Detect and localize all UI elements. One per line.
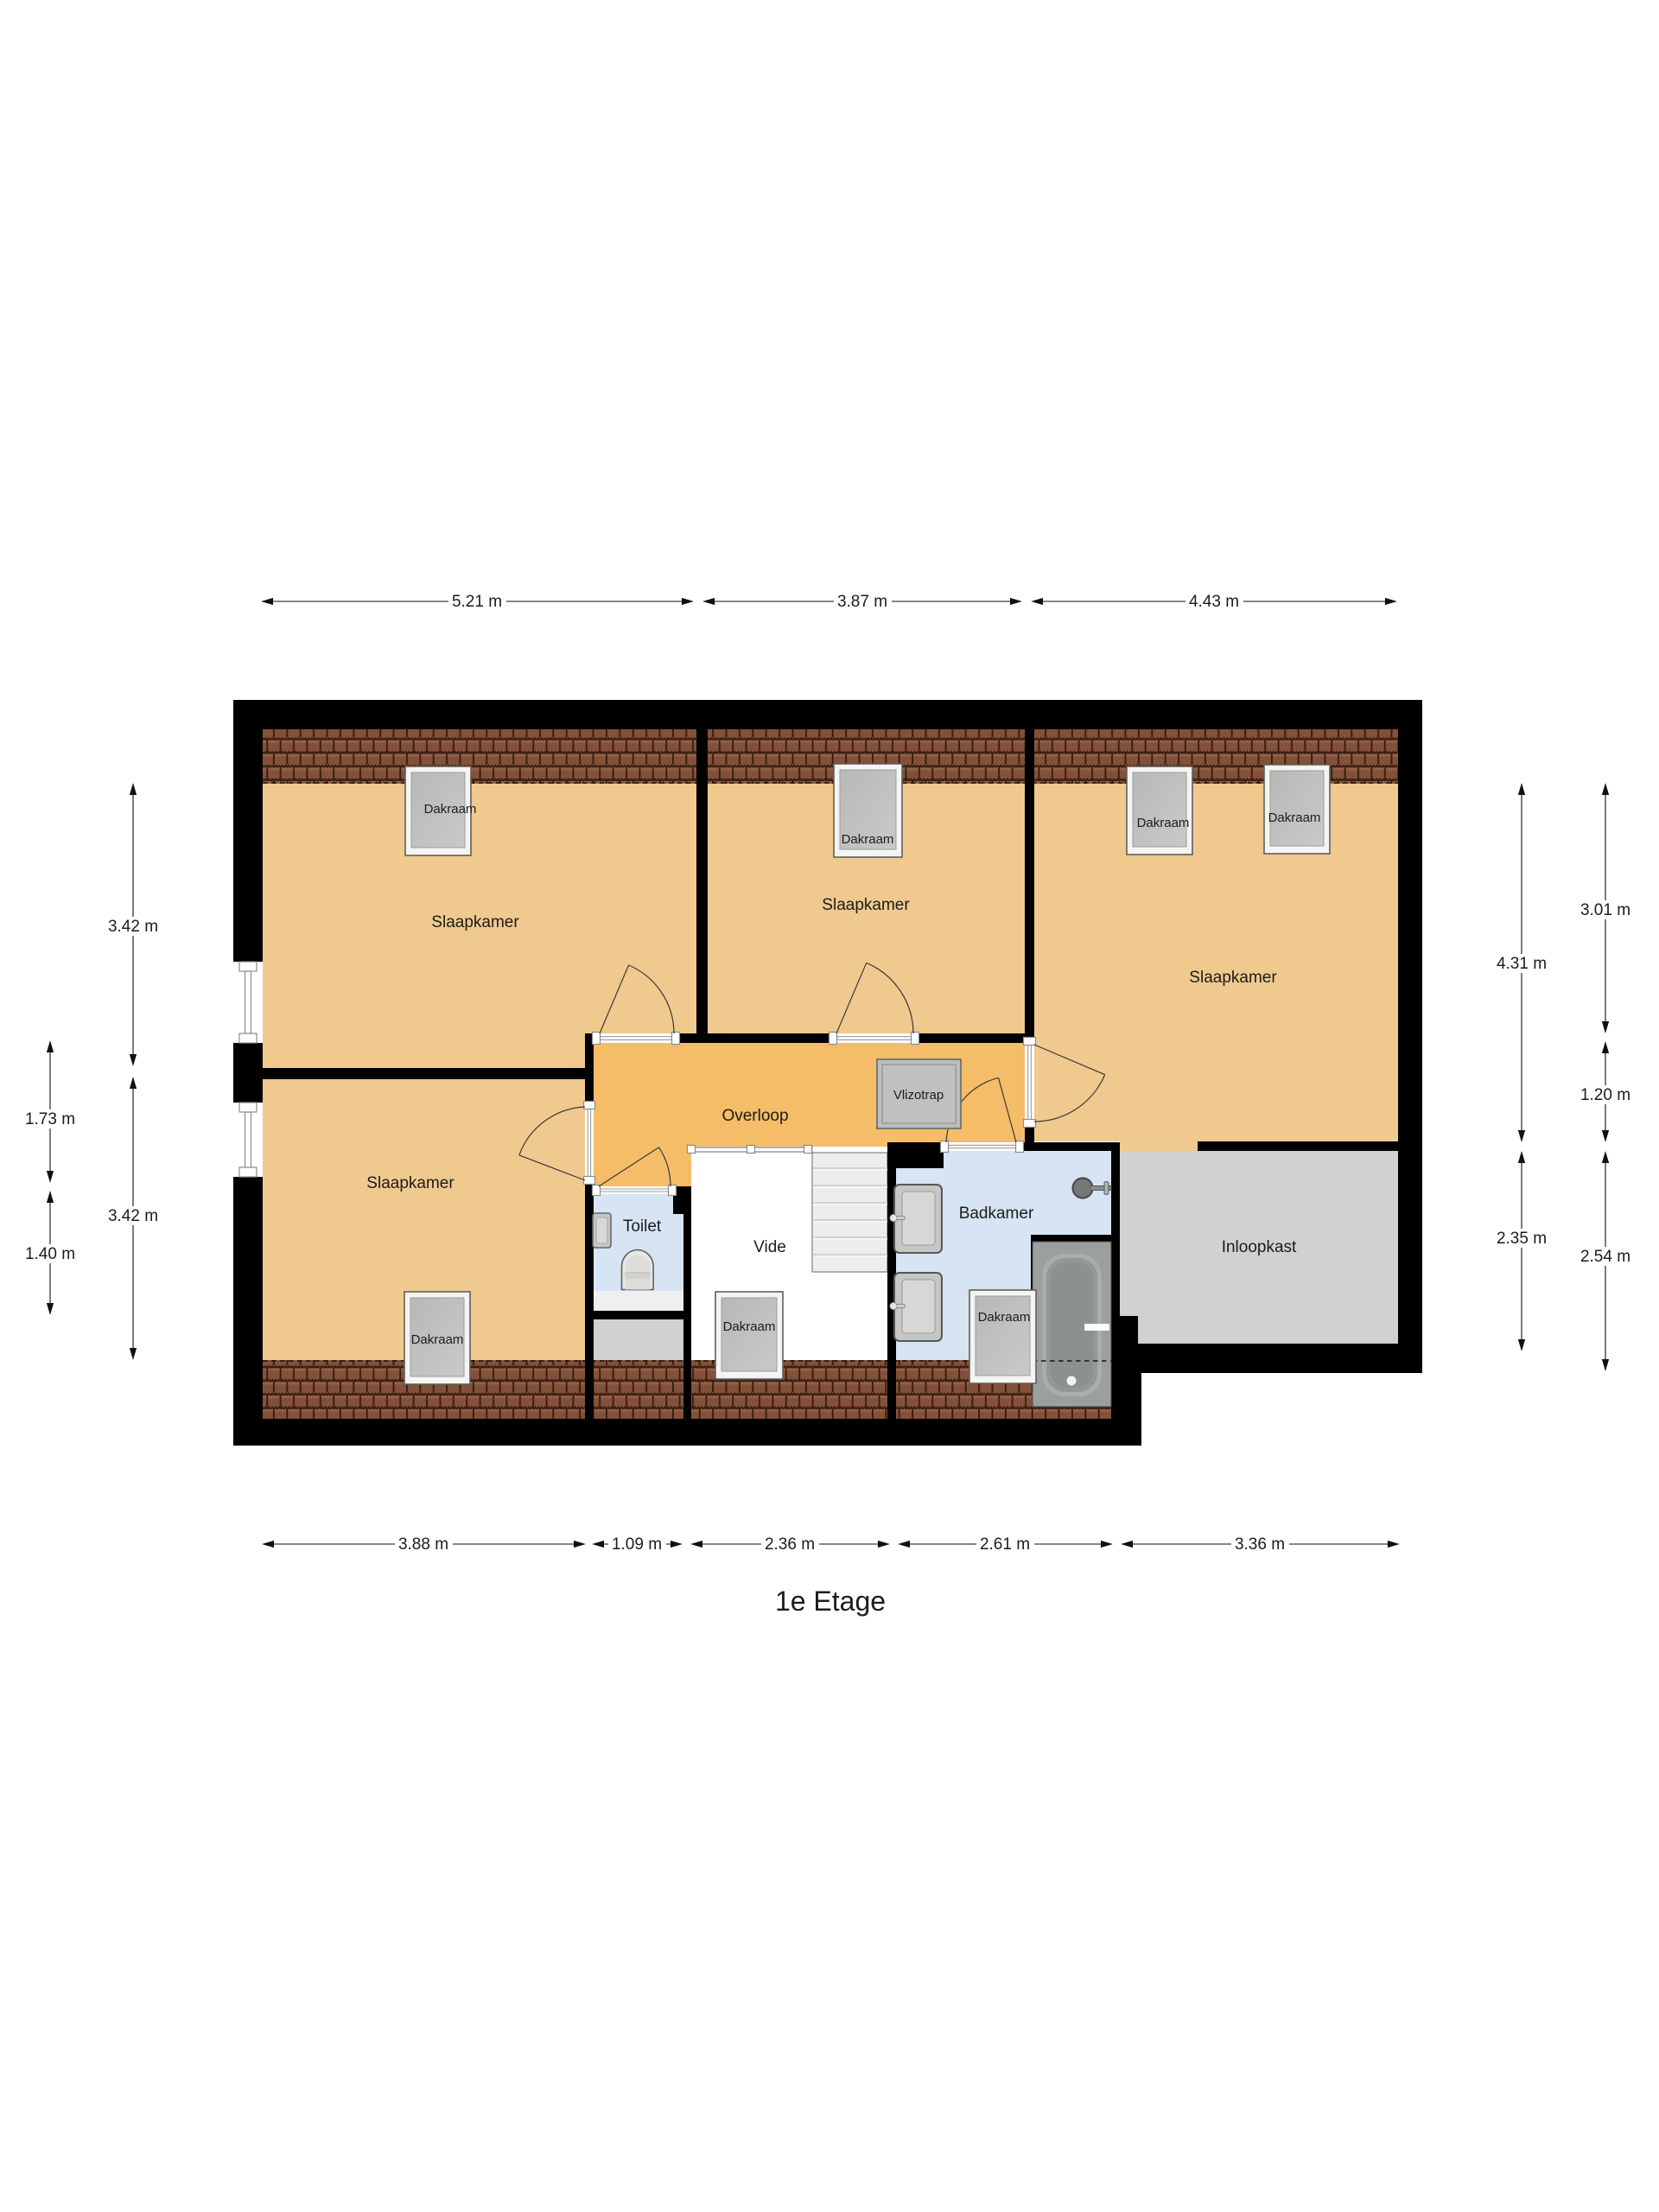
svg-text:3.36 m: 3.36 m [1235,1535,1285,1554]
svg-text:Inloopkast: Inloopkast [1222,1238,1297,1256]
svg-text:1.40 m: 1.40 m [25,1245,75,1263]
svg-text:Toilet: Toilet [623,1217,662,1236]
svg-text:1e Etage: 1e Etage [775,1586,886,1617]
svg-text:3.42 m: 3.42 m [108,1207,158,1225]
svg-text:3.88 m: 3.88 m [398,1535,448,1554]
svg-text:2.61 m: 2.61 m [980,1535,1030,1554]
svg-text:Overloop: Overloop [721,1107,788,1125]
svg-text:4.43 m: 4.43 m [1189,593,1239,611]
svg-text:3.87 m: 3.87 m [837,593,887,611]
svg-text:Badkamer: Badkamer [959,1205,1034,1223]
svg-text:2.35 m: 2.35 m [1497,1230,1547,1248]
svg-text:Dakraam: Dakraam [411,1332,464,1347]
svg-text:3.42 m: 3.42 m [108,918,158,936]
svg-text:1.09 m: 1.09 m [612,1535,662,1554]
svg-text:5.21 m: 5.21 m [452,593,502,611]
svg-text:1.73 m: 1.73 m [25,1110,75,1128]
svg-text:Dakraam: Dakraam [1268,810,1321,825]
svg-text:Dakraam: Dakraam [723,1319,776,1334]
svg-text:Dakraam: Dakraam [424,802,477,817]
svg-text:2.54 m: 2.54 m [1580,1248,1630,1266]
svg-text:Slaapkamer: Slaapkamer [431,913,519,931]
svg-text:Vlizotrap: Vlizotrap [893,1088,944,1103]
svg-text:3.01 m: 3.01 m [1580,901,1630,919]
svg-text:1.20 m: 1.20 m [1580,1086,1630,1104]
svg-text:2.36 m: 2.36 m [765,1535,815,1554]
svg-text:Slaapkamer: Slaapkamer [822,896,910,914]
svg-text:4.31 m: 4.31 m [1497,955,1547,973]
svg-text:Dakraam: Dakraam [842,832,894,847]
svg-text:Slaapkamer: Slaapkamer [366,1174,454,1192]
svg-text:Dakraam: Dakraam [1137,816,1190,830]
svg-text:Dakraam: Dakraam [978,1310,1031,1325]
svg-text:Vide: Vide [753,1238,786,1256]
svg-text:Slaapkamer: Slaapkamer [1189,969,1277,987]
